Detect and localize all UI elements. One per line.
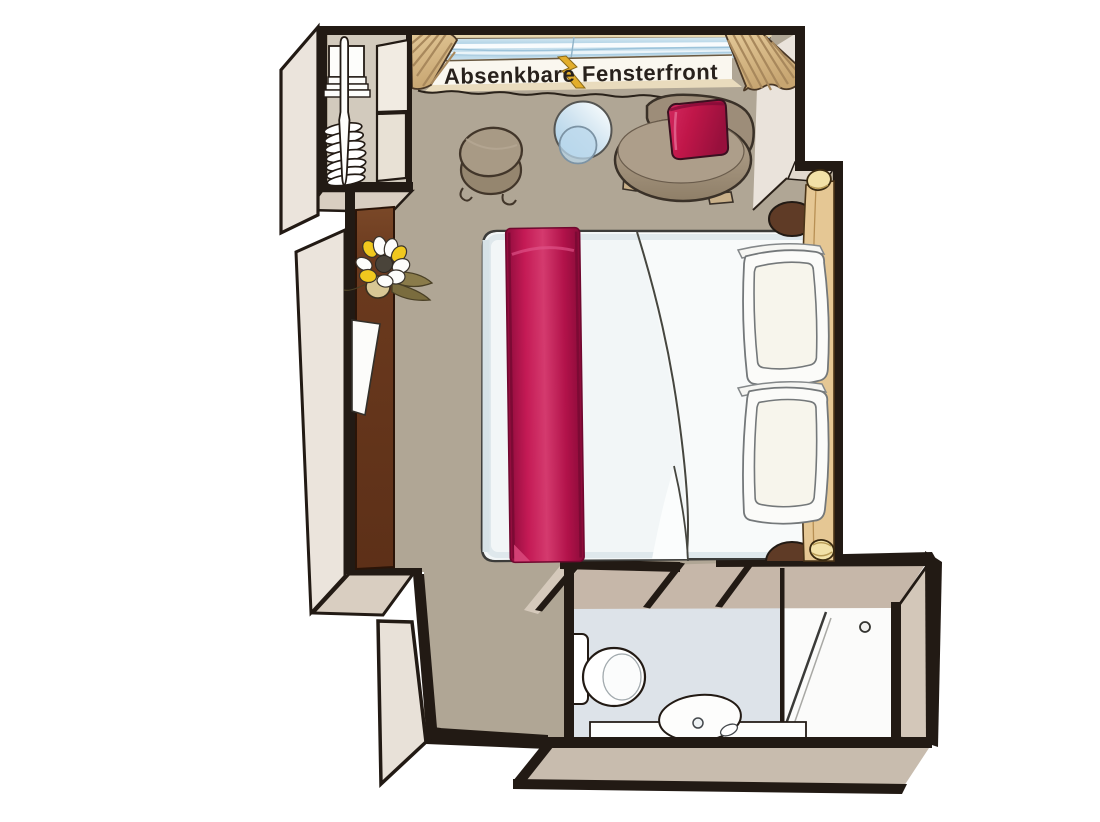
svg-text:Absenkbare Fensterfront: Absenkbare Fensterfront bbox=[444, 59, 719, 89]
